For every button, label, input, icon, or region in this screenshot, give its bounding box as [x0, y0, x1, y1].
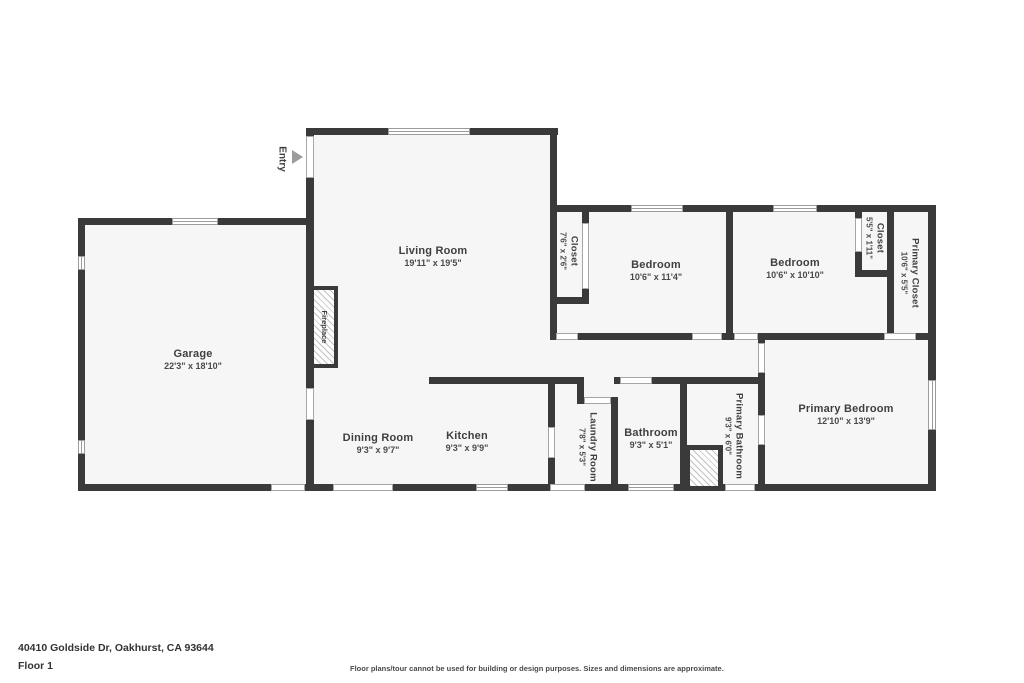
- room-dims: 10'6" x 10'10": [766, 270, 824, 282]
- address-text: 40410 Goldside Dr, Oakhurst, CA 93644: [18, 642, 214, 654]
- room-name: Laundry Room: [586, 412, 598, 481]
- room-name: Closet: [567, 232, 579, 270]
- wall: [589, 333, 693, 340]
- room-label-living-room: Living Room 19'11" x 19'5": [399, 244, 468, 270]
- room-name: Primary Closet: [908, 238, 920, 308]
- floor-plan-page: Garage 22'3" x 18'10" Living Room 19'11"…: [0, 0, 1024, 683]
- room-dims: 12'10" x 13'9": [798, 416, 893, 428]
- primary-bathroom-door: [758, 415, 765, 445]
- room-name: Living Room: [399, 244, 468, 258]
- wall: [611, 397, 618, 491]
- wall: [928, 205, 936, 491]
- room-dims: 9'3" x 5'1": [624, 440, 678, 452]
- room-name: Kitchen: [446, 429, 489, 443]
- entry-label: Entry: [276, 146, 289, 172]
- laundry-door: [584, 397, 611, 404]
- room-label-laundry: Laundry Room 7'8" x 5'3": [576, 412, 599, 481]
- bedroom2-closet-door: [855, 218, 862, 252]
- room-dims: 10'6" x 11'4": [630, 272, 682, 284]
- kitchen-window: [476, 484, 508, 491]
- wall: [550, 297, 589, 304]
- room-name: Primary Bathroom: [732, 393, 744, 479]
- dining-slider-door: [333, 484, 393, 491]
- room-name: Garage: [164, 347, 222, 361]
- room-dims: 7'8" x 5'3": [576, 412, 586, 481]
- room-dims: 9'3" x 9'9": [446, 443, 489, 455]
- room-name: Bedroom: [766, 256, 824, 270]
- kitchen-laundry-door: [548, 427, 555, 458]
- room-label-bedroom2-closet: Closet 5'5" x 1'11": [863, 217, 886, 259]
- bedroom1-door: [692, 333, 722, 340]
- bathroom-window: [628, 484, 674, 491]
- room-label-primary-closet: Primary Closet 10'6" x 5'5": [898, 238, 921, 308]
- hall-closet-door: [582, 223, 589, 289]
- floor-number: Floor 1: [18, 660, 53, 672]
- disclaimer-text: Floor plans/tour cannot be used for buil…: [350, 664, 724, 673]
- room-name: Dining Room: [343, 431, 414, 445]
- wall: [726, 205, 733, 340]
- primary-bath-rear-door: [725, 484, 755, 491]
- primary-bedroom-door: [758, 343, 765, 373]
- room-dims: 9'3" x 6'0": [722, 393, 732, 479]
- room-label-primary-bathroom: Primary Bathroom 9'3" x 6'0": [722, 393, 745, 479]
- room-label-kitchen: Kitchen 9'3" x 9'9": [446, 429, 489, 455]
- wall: [429, 377, 579, 384]
- linen-closet-door: [556, 333, 578, 340]
- primary-closet-door: [884, 333, 916, 340]
- room-dims: 22'3" x 18'10": [164, 361, 222, 373]
- fireplace-label: Fireplace: [319, 311, 329, 344]
- wall: [887, 205, 894, 340]
- garage-side-window: [78, 440, 85, 454]
- room-label-bedroom2: Bedroom 10'6" x 10'10": [766, 256, 824, 282]
- room-name: Closet: [873, 217, 885, 259]
- room-dims: 5'5" x 1'11": [863, 217, 873, 259]
- entry-arrow-icon: [292, 150, 303, 164]
- room-dims: 10'6" x 5'5": [898, 238, 908, 308]
- primary-bedroom-window: [928, 380, 936, 430]
- bedroom2-window: [773, 205, 817, 212]
- room-label-garage: Garage 22'3" x 18'10": [164, 347, 222, 373]
- room-dims: 9'3" x 9'7": [343, 445, 414, 457]
- room-dims: 19'11" x 19'5": [399, 258, 468, 270]
- garage-side-window: [78, 256, 85, 270]
- room-label-dining-room: Dining Room 9'3" x 9'7": [343, 431, 414, 457]
- room-name: Bedroom: [630, 258, 682, 272]
- bathroom-door: [620, 377, 652, 384]
- room-name: Primary Bedroom: [798, 402, 893, 416]
- room-label-bathroom: Bathroom 9'3" x 5'1": [624, 426, 678, 452]
- bedroom2-door: [734, 333, 758, 340]
- room-label-primary-bedroom: Primary Bedroom 12'10" x 13'9": [798, 402, 893, 428]
- bedroom1-window: [631, 205, 683, 212]
- shower: [685, 445, 723, 491]
- garage-dining-door: [306, 388, 314, 420]
- garage-window: [172, 218, 218, 225]
- room-dims: 7'6" x 2'6": [557, 232, 567, 270]
- room-name: Bathroom: [624, 426, 678, 440]
- wall: [552, 205, 936, 212]
- entry-door: [306, 136, 314, 178]
- rear-hall-door: [550, 484, 585, 491]
- room-label-hall-closet: Closet 7'6" x 2'6": [557, 232, 580, 270]
- garage-rear-door: [271, 484, 305, 491]
- living-room-window: [388, 128, 470, 135]
- room-label-bedroom1: Bedroom 10'6" x 11'4": [630, 258, 682, 284]
